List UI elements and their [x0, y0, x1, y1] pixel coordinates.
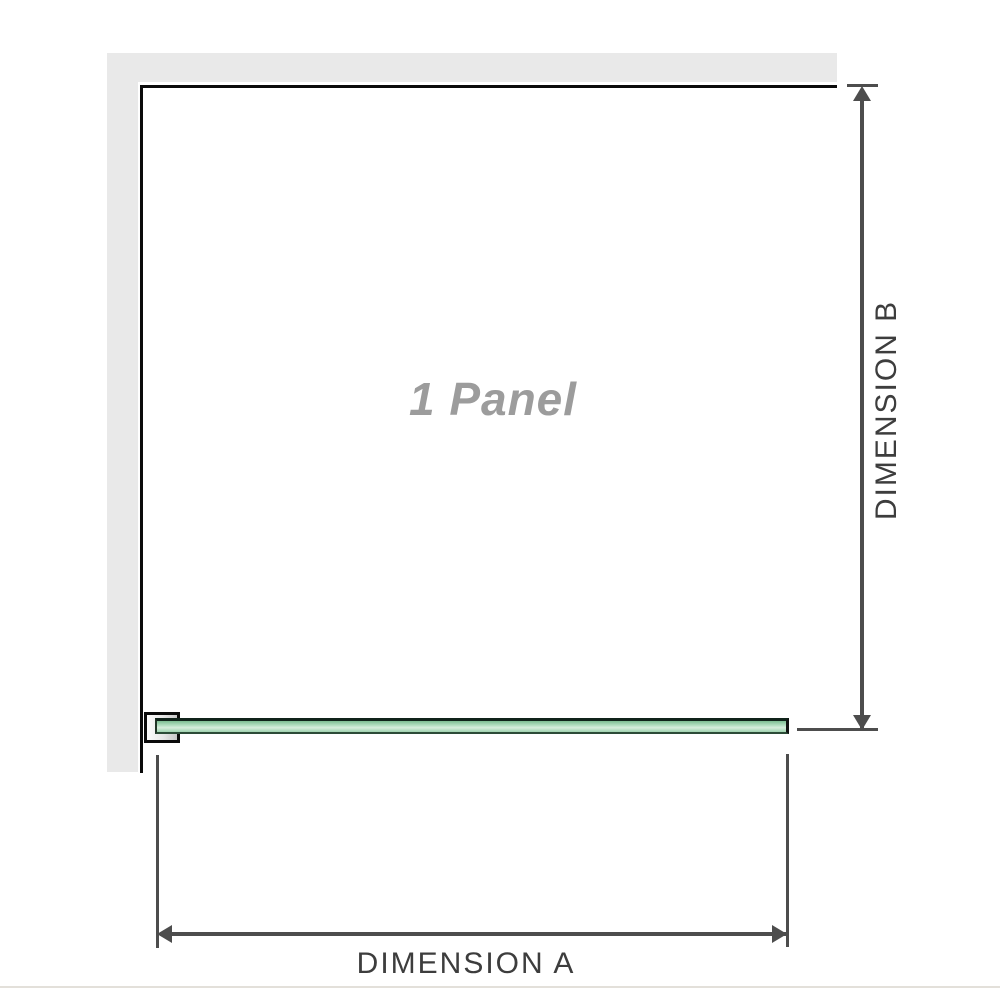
dimension-a-extension-right — [786, 754, 789, 947]
shower-screen-diagram: 1 Panel DIMENSION B DIMENSION A — [0, 0, 1000, 1000]
dimension-b-arrow-up-icon — [853, 86, 871, 101]
wall-edge-left-line — [140, 85, 143, 773]
wall-left — [107, 53, 138, 772]
dimension-b-arrow-down-icon — [853, 715, 871, 730]
panel-count-label: 1 Panel — [409, 372, 577, 426]
image-bottom-border — [0, 986, 1000, 988]
dimension-b-label: DIMENSION B — [870, 300, 904, 520]
wall-top — [107, 53, 837, 82]
wall-edge-top-line — [140, 85, 837, 88]
dimension-a-label: DIMENSION A — [357, 947, 576, 981]
dimension-a-line — [160, 932, 786, 936]
dimension-a-arrow-right-icon — [772, 925, 787, 943]
dimension-a-arrow-left-icon — [157, 925, 172, 943]
dimension-a-extension-left — [156, 755, 159, 948]
glass-panel — [155, 718, 789, 734]
dimension-b-line — [860, 90, 864, 728]
